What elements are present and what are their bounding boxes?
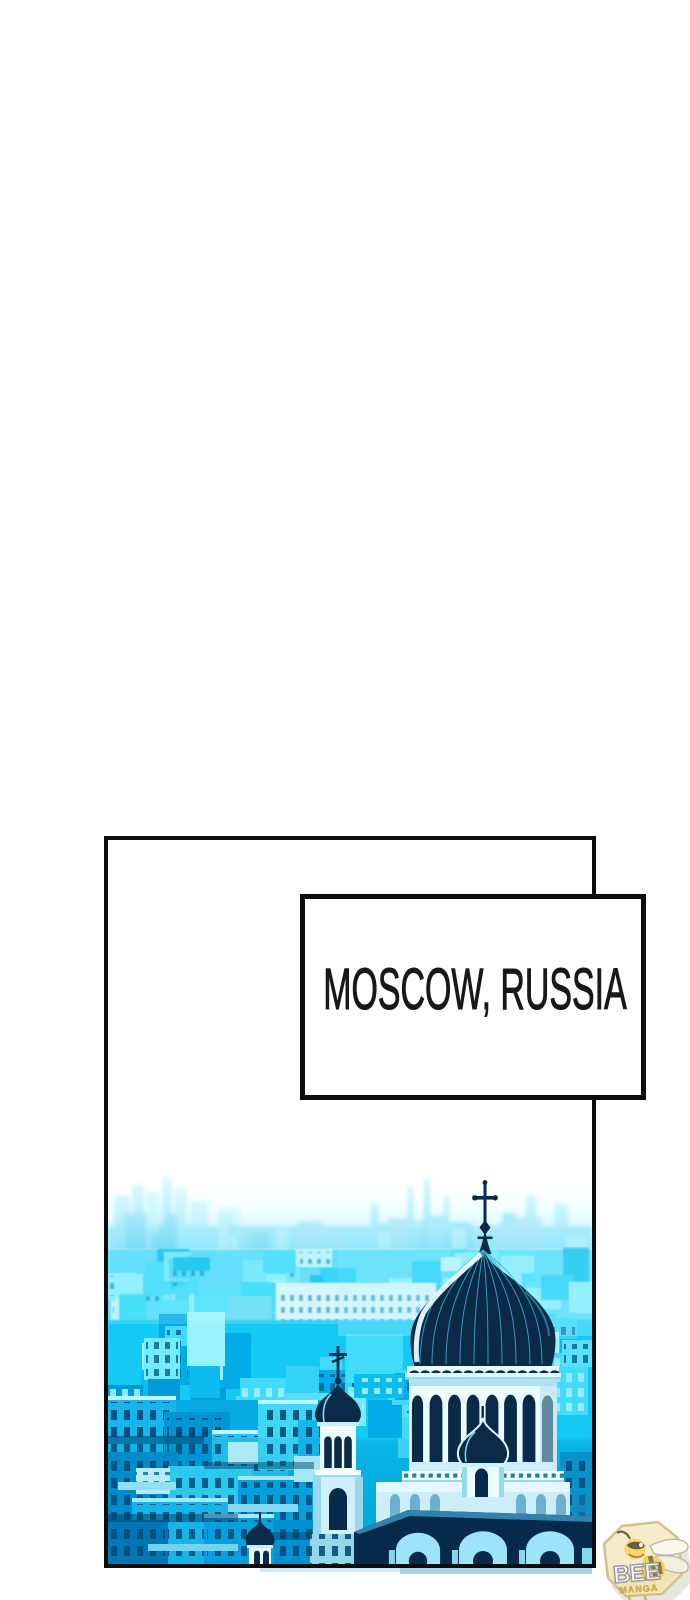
svg-text:MOSCOW, RUSSIA: MOSCOW, RUSSIA — [323, 958, 627, 1023]
